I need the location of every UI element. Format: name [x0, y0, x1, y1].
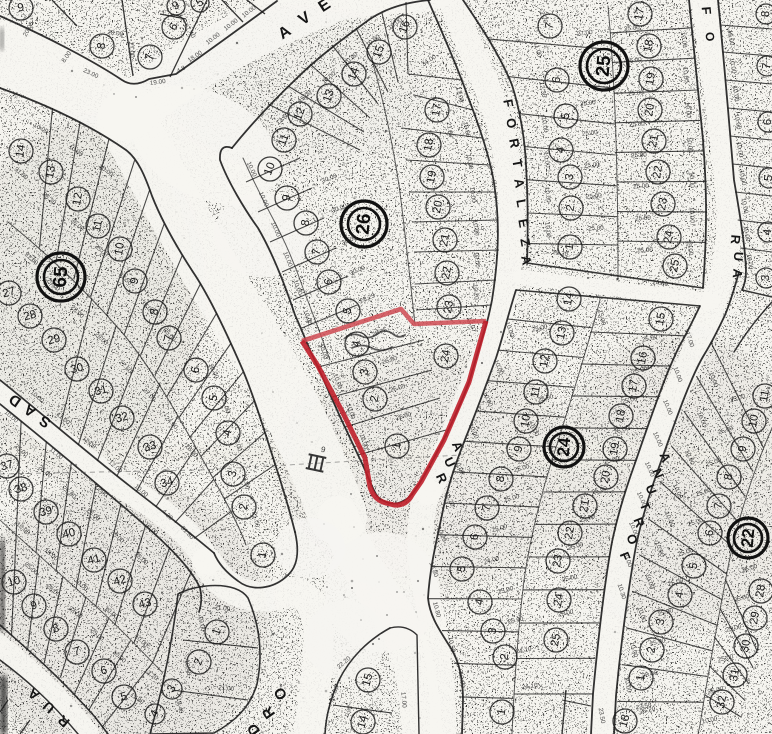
svg-text:18: 18 — [614, 409, 628, 424]
svg-text:25: 25 — [668, 259, 682, 274]
svg-text:8: 8 — [760, 10, 772, 17]
svg-text:21: 21 — [578, 499, 592, 514]
svg-text:23: 23 — [442, 300, 456, 315]
svg-text:20: 20 — [643, 103, 657, 118]
svg-text:22: 22 — [738, 528, 759, 549]
svg-text:O: O — [703, 31, 718, 44]
svg-text:F: F — [699, 6, 715, 17]
svg-text:20: 20 — [599, 470, 613, 485]
svg-text:12: 12 — [71, 192, 85, 207]
svg-text:19: 19 — [608, 442, 622, 457]
svg-text:22: 22 — [563, 526, 577, 541]
svg-text:17: 17 — [633, 7, 647, 22]
svg-text:R: R — [728, 234, 744, 247]
svg-text:13: 13 — [44, 165, 58, 180]
svg-text:25.00: 25.00 — [628, 89, 645, 97]
svg-text:19: 19 — [644, 72, 658, 87]
svg-text:7: 7 — [761, 62, 772, 69]
svg-text:24: 24 — [554, 436, 575, 457]
svg-text:25.00: 25.00 — [631, 151, 648, 159]
svg-text:11: 11 — [758, 389, 772, 403]
svg-text:22: 22 — [651, 165, 665, 180]
svg-text:18: 18 — [642, 39, 656, 54]
svg-text:10: 10 — [113, 242, 127, 257]
svg-text:25.00: 25.00 — [629, 120, 646, 128]
svg-text:10.00: 10.00 — [687, 172, 695, 189]
svg-text:10.00: 10.00 — [688, 207, 696, 224]
svg-text:23: 23 — [551, 554, 565, 569]
svg-text:31: 31 — [728, 668, 742, 683]
svg-text:25: 25 — [549, 633, 563, 648]
svg-text:17.00: 17.00 — [399, 692, 407, 709]
svg-text:12: 12 — [538, 354, 552, 369]
svg-text:3: 3 — [760, 274, 772, 281]
svg-text:22: 22 — [440, 266, 454, 281]
svg-text:18: 18 — [422, 138, 436, 153]
svg-text:15: 15 — [654, 312, 668, 327]
svg-text:25.00: 25.00 — [586, 192, 603, 200]
svg-text:23: 23 — [656, 197, 670, 212]
svg-text:10: 10 — [747, 414, 761, 429]
svg-text:28: 28 — [754, 584, 768, 599]
svg-text:17: 17 — [627, 379, 641, 394]
svg-text:11: 11 — [91, 219, 105, 233]
svg-text:25.00: 25.00 — [635, 215, 652, 223]
svg-text:25: 25 — [593, 54, 616, 77]
svg-text:5: 5 — [763, 174, 772, 181]
svg-text:10.00: 10.00 — [685, 137, 693, 154]
svg-text:21: 21 — [438, 233, 452, 248]
svg-text:20: 20 — [431, 200, 445, 215]
svg-text:30: 30 — [739, 639, 753, 654]
svg-text:25.00: 25.00 — [637, 247, 654, 255]
svg-text:10.20: 10.20 — [471, 284, 479, 301]
svg-text:13: 13 — [555, 326, 569, 341]
svg-text:6: 6 — [762, 118, 772, 125]
svg-text:27.00: 27.00 — [127, 42, 135, 59]
svg-text:16: 16 — [636, 351, 650, 366]
svg-text:25.00: 25.00 — [633, 182, 650, 190]
svg-text:17: 17 — [430, 103, 444, 118]
svg-text:25.00: 25.00 — [588, 224, 605, 232]
svg-text:29: 29 — [748, 611, 762, 626]
svg-text:32: 32 — [715, 695, 729, 710]
svg-text:25.00: 25.00 — [584, 161, 601, 169]
svg-text:21: 21 — [647, 134, 661, 149]
svg-text:19: 19 — [425, 170, 439, 185]
